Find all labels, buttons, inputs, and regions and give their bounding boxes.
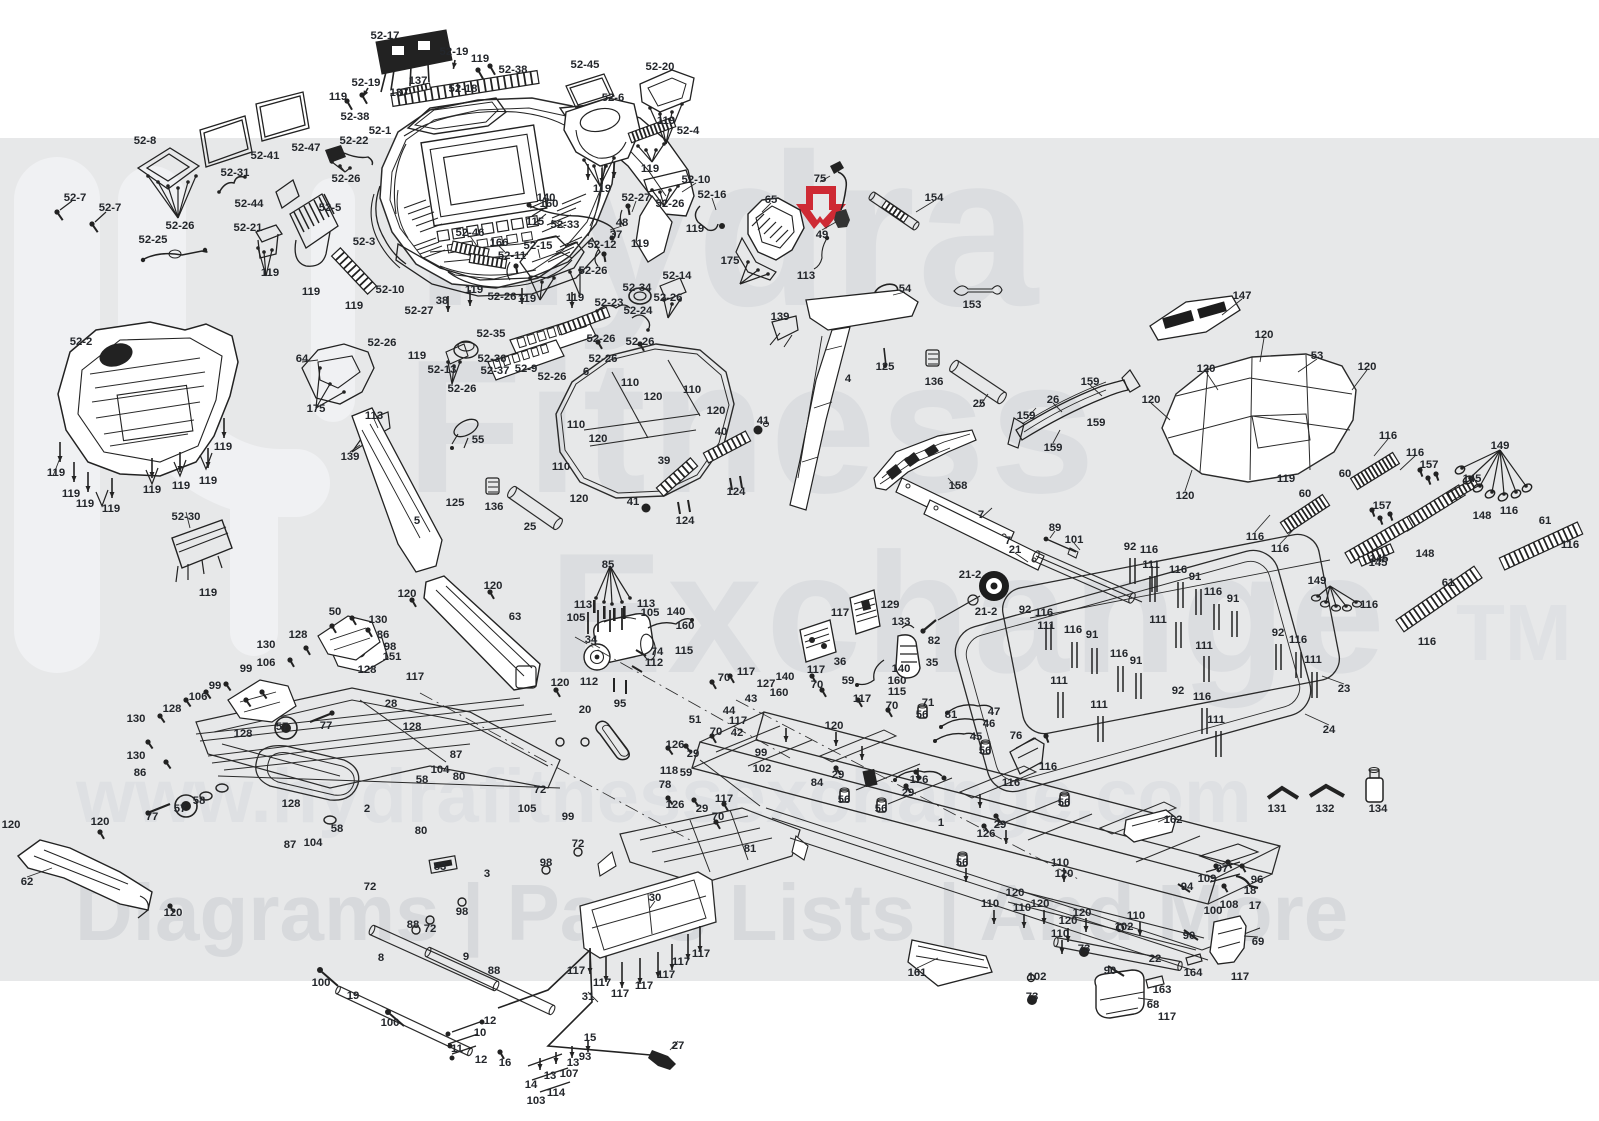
svg-text:93: 93: [579, 1051, 592, 1063]
svg-text:56: 56: [916, 709, 929, 721]
svg-text:52-3: 52-3: [353, 236, 376, 248]
svg-text:117: 117: [406, 671, 424, 683]
svg-text:11: 11: [451, 1043, 463, 1055]
svg-text:116: 116: [1406, 447, 1424, 459]
svg-text:128: 128: [358, 664, 377, 676]
svg-text:91: 91: [1086, 629, 1099, 641]
svg-text:119: 119: [518, 293, 536, 305]
svg-text:118: 118: [660, 765, 678, 777]
svg-text:15: 15: [584, 1032, 597, 1044]
svg-text:21: 21: [1009, 544, 1022, 556]
svg-text:62: 62: [21, 876, 34, 888]
svg-text:77: 77: [146, 811, 159, 823]
svg-text:39: 39: [658, 455, 671, 467]
svg-text:117: 117: [853, 693, 871, 705]
svg-text:114: 114: [547, 1087, 566, 1099]
svg-text:58: 58: [331, 823, 344, 835]
svg-text:52-27: 52-27: [622, 192, 651, 204]
svg-text:58: 58: [193, 795, 206, 807]
svg-text:52-38: 52-38: [499, 64, 528, 76]
svg-text:52-38: 52-38: [341, 111, 370, 123]
svg-text:54: 54: [899, 283, 912, 295]
svg-text:132: 132: [1316, 803, 1335, 815]
svg-text:103: 103: [527, 1095, 546, 1107]
svg-text:116: 116: [1246, 531, 1264, 543]
svg-text:52-30: 52-30: [172, 511, 201, 523]
svg-text:92: 92: [1272, 627, 1285, 639]
svg-text:38: 38: [436, 295, 449, 307]
svg-text:115: 115: [888, 686, 906, 698]
svg-text:100: 100: [381, 1017, 400, 1029]
svg-text:148: 148: [1473, 510, 1492, 522]
svg-text:52-7: 52-7: [64, 192, 87, 204]
svg-text:41: 41: [757, 415, 770, 427]
svg-text:52-11: 52-11: [498, 250, 526, 262]
svg-text:128: 128: [282, 798, 301, 810]
svg-text:70: 70: [886, 700, 899, 712]
svg-text:34: 34: [585, 634, 598, 646]
svg-text:52-26: 52-26: [166, 220, 195, 232]
svg-text:87: 87: [284, 839, 297, 851]
svg-text:148: 148: [1416, 548, 1435, 560]
svg-text:124: 124: [727, 486, 747, 498]
svg-text:57: 57: [174, 803, 187, 815]
svg-text:163: 163: [1153, 984, 1172, 996]
svg-text:22: 22: [1149, 953, 1162, 965]
svg-text:1: 1: [938, 817, 944, 829]
svg-text:119: 119: [566, 292, 584, 304]
svg-text:52-26: 52-26: [448, 383, 477, 395]
svg-text:52-10: 52-10: [376, 284, 405, 296]
svg-text:147: 147: [1233, 290, 1252, 302]
svg-text:128: 128: [289, 629, 308, 641]
svg-text:105: 105: [518, 803, 537, 815]
svg-text:126: 126: [666, 739, 685, 751]
svg-text:120: 120: [164, 907, 183, 919]
svg-text:149: 149: [1491, 440, 1510, 452]
svg-text:117: 117: [807, 664, 825, 676]
svg-text:25: 25: [973, 398, 986, 410]
svg-text:161: 161: [908, 967, 927, 979]
svg-text:111: 111: [1304, 654, 1322, 666]
svg-text:52-9: 52-9: [515, 363, 538, 375]
svg-text:6: 6: [583, 366, 589, 378]
svg-text:78: 78: [659, 779, 672, 791]
svg-text:41: 41: [627, 496, 640, 508]
svg-text:164: 164: [1184, 967, 1204, 979]
svg-text:133: 133: [892, 616, 911, 628]
svg-text:3: 3: [484, 868, 490, 880]
svg-text:92: 92: [1172, 685, 1185, 697]
svg-text:119: 119: [261, 267, 279, 279]
svg-text:98: 98: [456, 906, 469, 918]
svg-text:116: 116: [1064, 624, 1082, 636]
svg-text:52-19: 52-19: [440, 46, 469, 58]
svg-text:128: 128: [234, 728, 253, 740]
svg-text:81: 81: [945, 709, 958, 721]
svg-text:116: 116: [1035, 607, 1053, 619]
svg-text:126: 126: [910, 774, 929, 786]
svg-text:117: 117: [1158, 1011, 1176, 1023]
svg-text:88: 88: [488, 965, 501, 977]
svg-text:12: 12: [475, 1054, 488, 1066]
svg-text:120: 120: [91, 816, 110, 828]
svg-text:119: 119: [329, 91, 347, 103]
svg-text:52-44: 52-44: [235, 198, 265, 210]
svg-text:125: 125: [876, 361, 895, 373]
svg-text:58: 58: [416, 774, 429, 786]
svg-text:63: 63: [509, 611, 522, 623]
svg-text:119: 119: [641, 163, 659, 175]
svg-text:35: 35: [926, 657, 939, 669]
svg-text:140: 140: [667, 606, 686, 618]
svg-text:23: 23: [1338, 683, 1351, 695]
svg-text:29: 29: [696, 803, 709, 815]
svg-text:84: 84: [811, 777, 824, 789]
svg-text:137: 137: [390, 87, 409, 99]
svg-text:12: 12: [484, 1015, 497, 1027]
svg-text:56: 56: [956, 857, 969, 869]
svg-text:119: 119: [143, 484, 161, 496]
svg-text:119: 119: [172, 480, 190, 492]
svg-text:116: 116: [1110, 648, 1128, 660]
svg-text:57: 57: [276, 721, 289, 733]
svg-text:110: 110: [1013, 902, 1031, 914]
svg-text:160: 160: [540, 198, 559, 210]
svg-text:83: 83: [434, 861, 447, 873]
svg-text:50: 50: [329, 606, 342, 618]
svg-text:120: 120: [570, 493, 589, 505]
svg-text:110: 110: [683, 384, 701, 396]
svg-text:113: 113: [574, 599, 592, 611]
svg-text:68: 68: [1147, 999, 1160, 1011]
svg-text:52-22: 52-22: [340, 135, 369, 147]
svg-text:56: 56: [1058, 797, 1071, 809]
svg-text:52-26: 52-26: [579, 265, 608, 277]
svg-text:48: 48: [616, 217, 629, 229]
svg-text:18: 18: [1244, 885, 1257, 897]
svg-text:110: 110: [621, 377, 639, 389]
svg-text:29: 29: [994, 819, 1007, 831]
svg-text:111: 111: [1142, 559, 1160, 571]
svg-text:56: 56: [875, 803, 888, 815]
svg-text:45: 45: [970, 731, 983, 743]
svg-text:89: 89: [1049, 522, 1062, 534]
svg-text:160: 160: [676, 620, 695, 632]
svg-text:61: 61: [1442, 577, 1455, 589]
svg-text:130: 130: [127, 713, 146, 725]
svg-text:5: 5: [414, 515, 420, 527]
svg-text:2: 2: [364, 803, 370, 815]
svg-text:119: 119: [631, 238, 649, 250]
svg-text:90: 90: [1104, 965, 1117, 977]
svg-text:52-6: 52-6: [602, 92, 625, 104]
svg-text:56: 56: [979, 745, 992, 757]
svg-text:106: 106: [189, 691, 208, 703]
svg-text:7: 7: [978, 509, 984, 521]
svg-text:117: 117: [567, 965, 585, 977]
svg-text:119: 119: [593, 183, 611, 195]
svg-text:52-47: 52-47: [292, 142, 321, 154]
svg-text:52-36: 52-36: [478, 353, 507, 365]
svg-text:97: 97: [1216, 863, 1229, 875]
svg-text:120: 120: [1197, 363, 1216, 375]
svg-text:130: 130: [257, 639, 276, 651]
svg-text:140: 140: [892, 663, 911, 675]
svg-text:104: 104: [304, 837, 324, 849]
svg-text:129: 129: [881, 599, 900, 611]
svg-text:52-34: 52-34: [623, 282, 653, 294]
svg-text:70: 70: [710, 726, 723, 738]
svg-text:120: 120: [825, 720, 844, 732]
svg-text:55: 55: [472, 434, 485, 446]
svg-text:80: 80: [415, 825, 428, 837]
svg-text:70: 70: [712, 811, 725, 823]
svg-text:175: 175: [307, 403, 326, 415]
svg-text:36: 36: [834, 656, 847, 668]
svg-text:42: 42: [731, 727, 744, 739]
svg-text:52-26: 52-26: [538, 371, 567, 383]
svg-text:21-2: 21-2: [975, 606, 998, 618]
svg-text:116: 116: [1379, 430, 1397, 442]
svg-text:120: 120: [1031, 898, 1050, 910]
svg-text:19: 19: [347, 990, 360, 1002]
svg-text:119: 119: [471, 53, 489, 65]
svg-text:52-19: 52-19: [352, 77, 381, 89]
svg-text:126: 126: [977, 828, 996, 840]
svg-text:60: 60: [1299, 488, 1312, 500]
svg-text:52-26: 52-26: [626, 336, 655, 348]
svg-text:51: 51: [689, 714, 702, 726]
svg-text:86: 86: [377, 629, 390, 641]
svg-text:126: 126: [666, 799, 685, 811]
svg-text:29: 29: [832, 769, 845, 781]
svg-text:116: 116: [1193, 691, 1211, 703]
svg-text:31: 31: [582, 991, 595, 1003]
svg-text:120: 120: [1006, 887, 1025, 899]
svg-text:70: 70: [718, 672, 731, 684]
svg-text:52-2: 52-2: [70, 336, 93, 348]
svg-text:14: 14: [525, 1079, 538, 1091]
svg-text:70: 70: [811, 679, 824, 691]
svg-text:86: 86: [134, 767, 147, 779]
svg-text:98: 98: [540, 857, 553, 869]
svg-text:116: 116: [1500, 505, 1518, 517]
svg-text:119: 119: [345, 300, 363, 312]
svg-text:157: 157: [1420, 459, 1439, 471]
svg-text:52-26: 52-26: [332, 173, 361, 185]
svg-text:119: 119: [465, 284, 483, 296]
svg-text:102: 102: [753, 763, 772, 775]
svg-text:107: 107: [560, 1068, 579, 1080]
svg-text:120: 120: [1055, 868, 1074, 880]
svg-text:29: 29: [687, 748, 700, 760]
svg-text:119: 119: [47, 467, 65, 479]
svg-text:75: 75: [814, 173, 827, 185]
svg-text:120: 120: [1255, 329, 1274, 341]
svg-text:116: 116: [1140, 544, 1158, 556]
svg-text:125: 125: [446, 497, 465, 509]
svg-text:102: 102: [1115, 921, 1134, 933]
svg-text:120: 120: [551, 677, 570, 689]
svg-text:52-10: 52-10: [682, 174, 711, 186]
svg-text:119: 119: [686, 223, 704, 235]
svg-text:111: 111: [1090, 699, 1108, 711]
svg-text:71: 71: [922, 697, 935, 709]
svg-text:52-26: 52-26: [654, 292, 683, 304]
svg-text:159: 159: [1017, 410, 1036, 422]
svg-text:52-26: 52-26: [368, 337, 397, 349]
svg-text:119: 119: [657, 115, 675, 127]
svg-text:120: 120: [1358, 361, 1377, 373]
svg-text:8: 8: [378, 952, 384, 964]
svg-text:52-46: 52-46: [456, 227, 485, 239]
svg-text:88: 88: [407, 919, 420, 931]
svg-text:52-21: 52-21: [234, 222, 263, 234]
svg-text:72: 72: [572, 838, 585, 850]
svg-text:124: 124: [676, 515, 696, 527]
svg-text:119: 119: [76, 498, 94, 510]
svg-text:117: 117: [635, 980, 653, 992]
svg-text:4: 4: [845, 373, 852, 385]
svg-text:119: 119: [199, 587, 217, 599]
svg-text:110: 110: [1051, 928, 1069, 940]
svg-text:159: 159: [1044, 442, 1063, 454]
svg-text:116: 116: [1204, 586, 1222, 598]
svg-text:9: 9: [463, 951, 469, 963]
svg-text:10: 10: [474, 1027, 487, 1039]
svg-text:73: 73: [1078, 943, 1091, 955]
svg-text:24: 24: [1323, 724, 1336, 736]
svg-text:120: 120: [484, 580, 503, 592]
svg-text:72: 72: [424, 923, 437, 935]
svg-text:119: 119: [408, 350, 426, 362]
svg-text:Fitness: Fitness: [406, 321, 1099, 533]
svg-text:72: 72: [364, 881, 377, 893]
svg-text:112: 112: [580, 676, 598, 688]
svg-text:52-26: 52-26: [589, 353, 618, 365]
svg-text:64: 64: [296, 353, 309, 365]
svg-text:110: 110: [981, 898, 999, 910]
svg-text:52-8: 52-8: [134, 135, 157, 147]
svg-text:117: 117: [715, 793, 733, 805]
svg-text:117: 117: [737, 666, 755, 678]
svg-text:158: 158: [949, 480, 968, 492]
svg-text:106: 106: [257, 657, 276, 669]
svg-text:100: 100: [312, 977, 331, 989]
svg-text:145: 145: [1369, 557, 1388, 569]
svg-text:105: 105: [567, 612, 586, 624]
svg-text:117: 117: [1231, 971, 1249, 983]
svg-text:166: 166: [490, 237, 509, 249]
svg-text:136: 136: [485, 501, 504, 513]
svg-text:154: 154: [925, 192, 945, 204]
svg-text:153: 153: [963, 299, 982, 311]
svg-text:47: 47: [988, 706, 1001, 718]
svg-text:52-7: 52-7: [99, 202, 122, 214]
svg-text:120: 120: [707, 405, 726, 417]
svg-text:104: 104: [431, 764, 451, 776]
svg-text:100: 100: [1204, 905, 1223, 917]
svg-text:52-41: 52-41: [251, 150, 280, 162]
svg-text:59: 59: [680, 767, 693, 779]
svg-text:92: 92: [1124, 541, 1137, 553]
svg-text:130: 130: [127, 750, 146, 762]
svg-text:25: 25: [524, 521, 537, 533]
svg-text:119: 119: [214, 441, 232, 453]
svg-text:120: 120: [398, 588, 417, 600]
svg-text:120: 120: [589, 433, 608, 445]
svg-text:52-45: 52-45: [571, 59, 600, 71]
svg-text:77: 77: [320, 720, 333, 732]
svg-text:27: 27: [672, 1040, 685, 1052]
svg-text:40: 40: [715, 426, 728, 438]
svg-text:117: 117: [672, 956, 690, 968]
svg-text:95: 95: [614, 698, 627, 710]
svg-text:59: 59: [842, 675, 855, 687]
svg-text:30: 30: [649, 892, 662, 904]
svg-text:119: 119: [102, 503, 120, 515]
svg-text:128: 128: [163, 703, 182, 715]
svg-text:49: 49: [816, 229, 829, 241]
svg-text:92: 92: [1019, 604, 1032, 616]
svg-text:116: 116: [1271, 543, 1289, 555]
svg-text:91: 91: [1130, 655, 1143, 667]
svg-text:13: 13: [544, 1070, 557, 1082]
svg-text:99: 99: [240, 663, 253, 675]
svg-text:52-23: 52-23: [595, 297, 624, 309]
svg-text:60: 60: [1339, 468, 1352, 480]
svg-text:116: 116: [1169, 564, 1187, 576]
svg-text:120: 120: [2, 819, 21, 831]
svg-text:52-12: 52-12: [588, 239, 617, 251]
svg-text:28: 28: [385, 698, 398, 710]
svg-text:69: 69: [1252, 936, 1265, 948]
svg-text:87: 87: [450, 749, 463, 761]
svg-text:17: 17: [1249, 900, 1262, 912]
svg-text:117: 117: [611, 988, 629, 1000]
svg-text:105: 105: [641, 607, 660, 619]
svg-text:52-25: 52-25: [139, 234, 168, 246]
svg-text:TM: TM: [1456, 588, 1572, 677]
svg-text:162: 162: [1164, 814, 1183, 826]
svg-text:160: 160: [770, 687, 789, 699]
svg-text:112: 112: [645, 657, 663, 669]
svg-text:136: 136: [925, 376, 944, 388]
svg-text:139: 139: [771, 311, 790, 323]
svg-text:130: 130: [369, 614, 388, 626]
svg-text:52-20: 52-20: [646, 61, 675, 73]
svg-text:53: 53: [1311, 350, 1324, 362]
svg-text:102: 102: [1028, 971, 1047, 983]
svg-text:20: 20: [579, 704, 592, 716]
svg-text:111: 111: [1149, 614, 1167, 626]
svg-text:43: 43: [745, 693, 758, 705]
svg-text:52-26: 52-26: [587, 333, 616, 345]
svg-text:131: 131: [1268, 803, 1287, 815]
svg-text:94: 94: [1181, 881, 1194, 893]
svg-text:116: 116: [1289, 634, 1307, 646]
svg-text:101: 101: [1065, 534, 1084, 546]
svg-text:175: 175: [721, 255, 740, 267]
svg-text:116: 116: [1561, 539, 1579, 551]
svg-text:116: 116: [1002, 777, 1020, 789]
svg-text:91: 91: [1189, 571, 1202, 583]
svg-text:117: 117: [657, 969, 675, 981]
svg-text:61: 61: [1539, 515, 1552, 527]
svg-text:52-37: 52-37: [481, 365, 510, 377]
svg-text:109: 109: [1198, 873, 1217, 885]
